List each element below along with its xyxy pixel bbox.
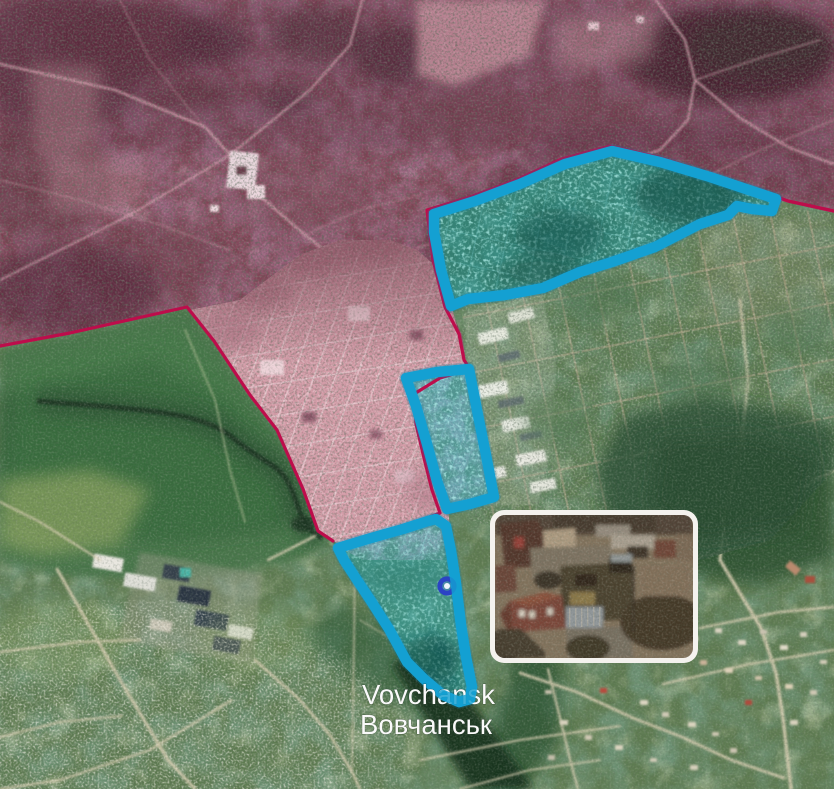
svg-text:Вовчанськ: Вовчанськ bbox=[360, 709, 493, 740]
